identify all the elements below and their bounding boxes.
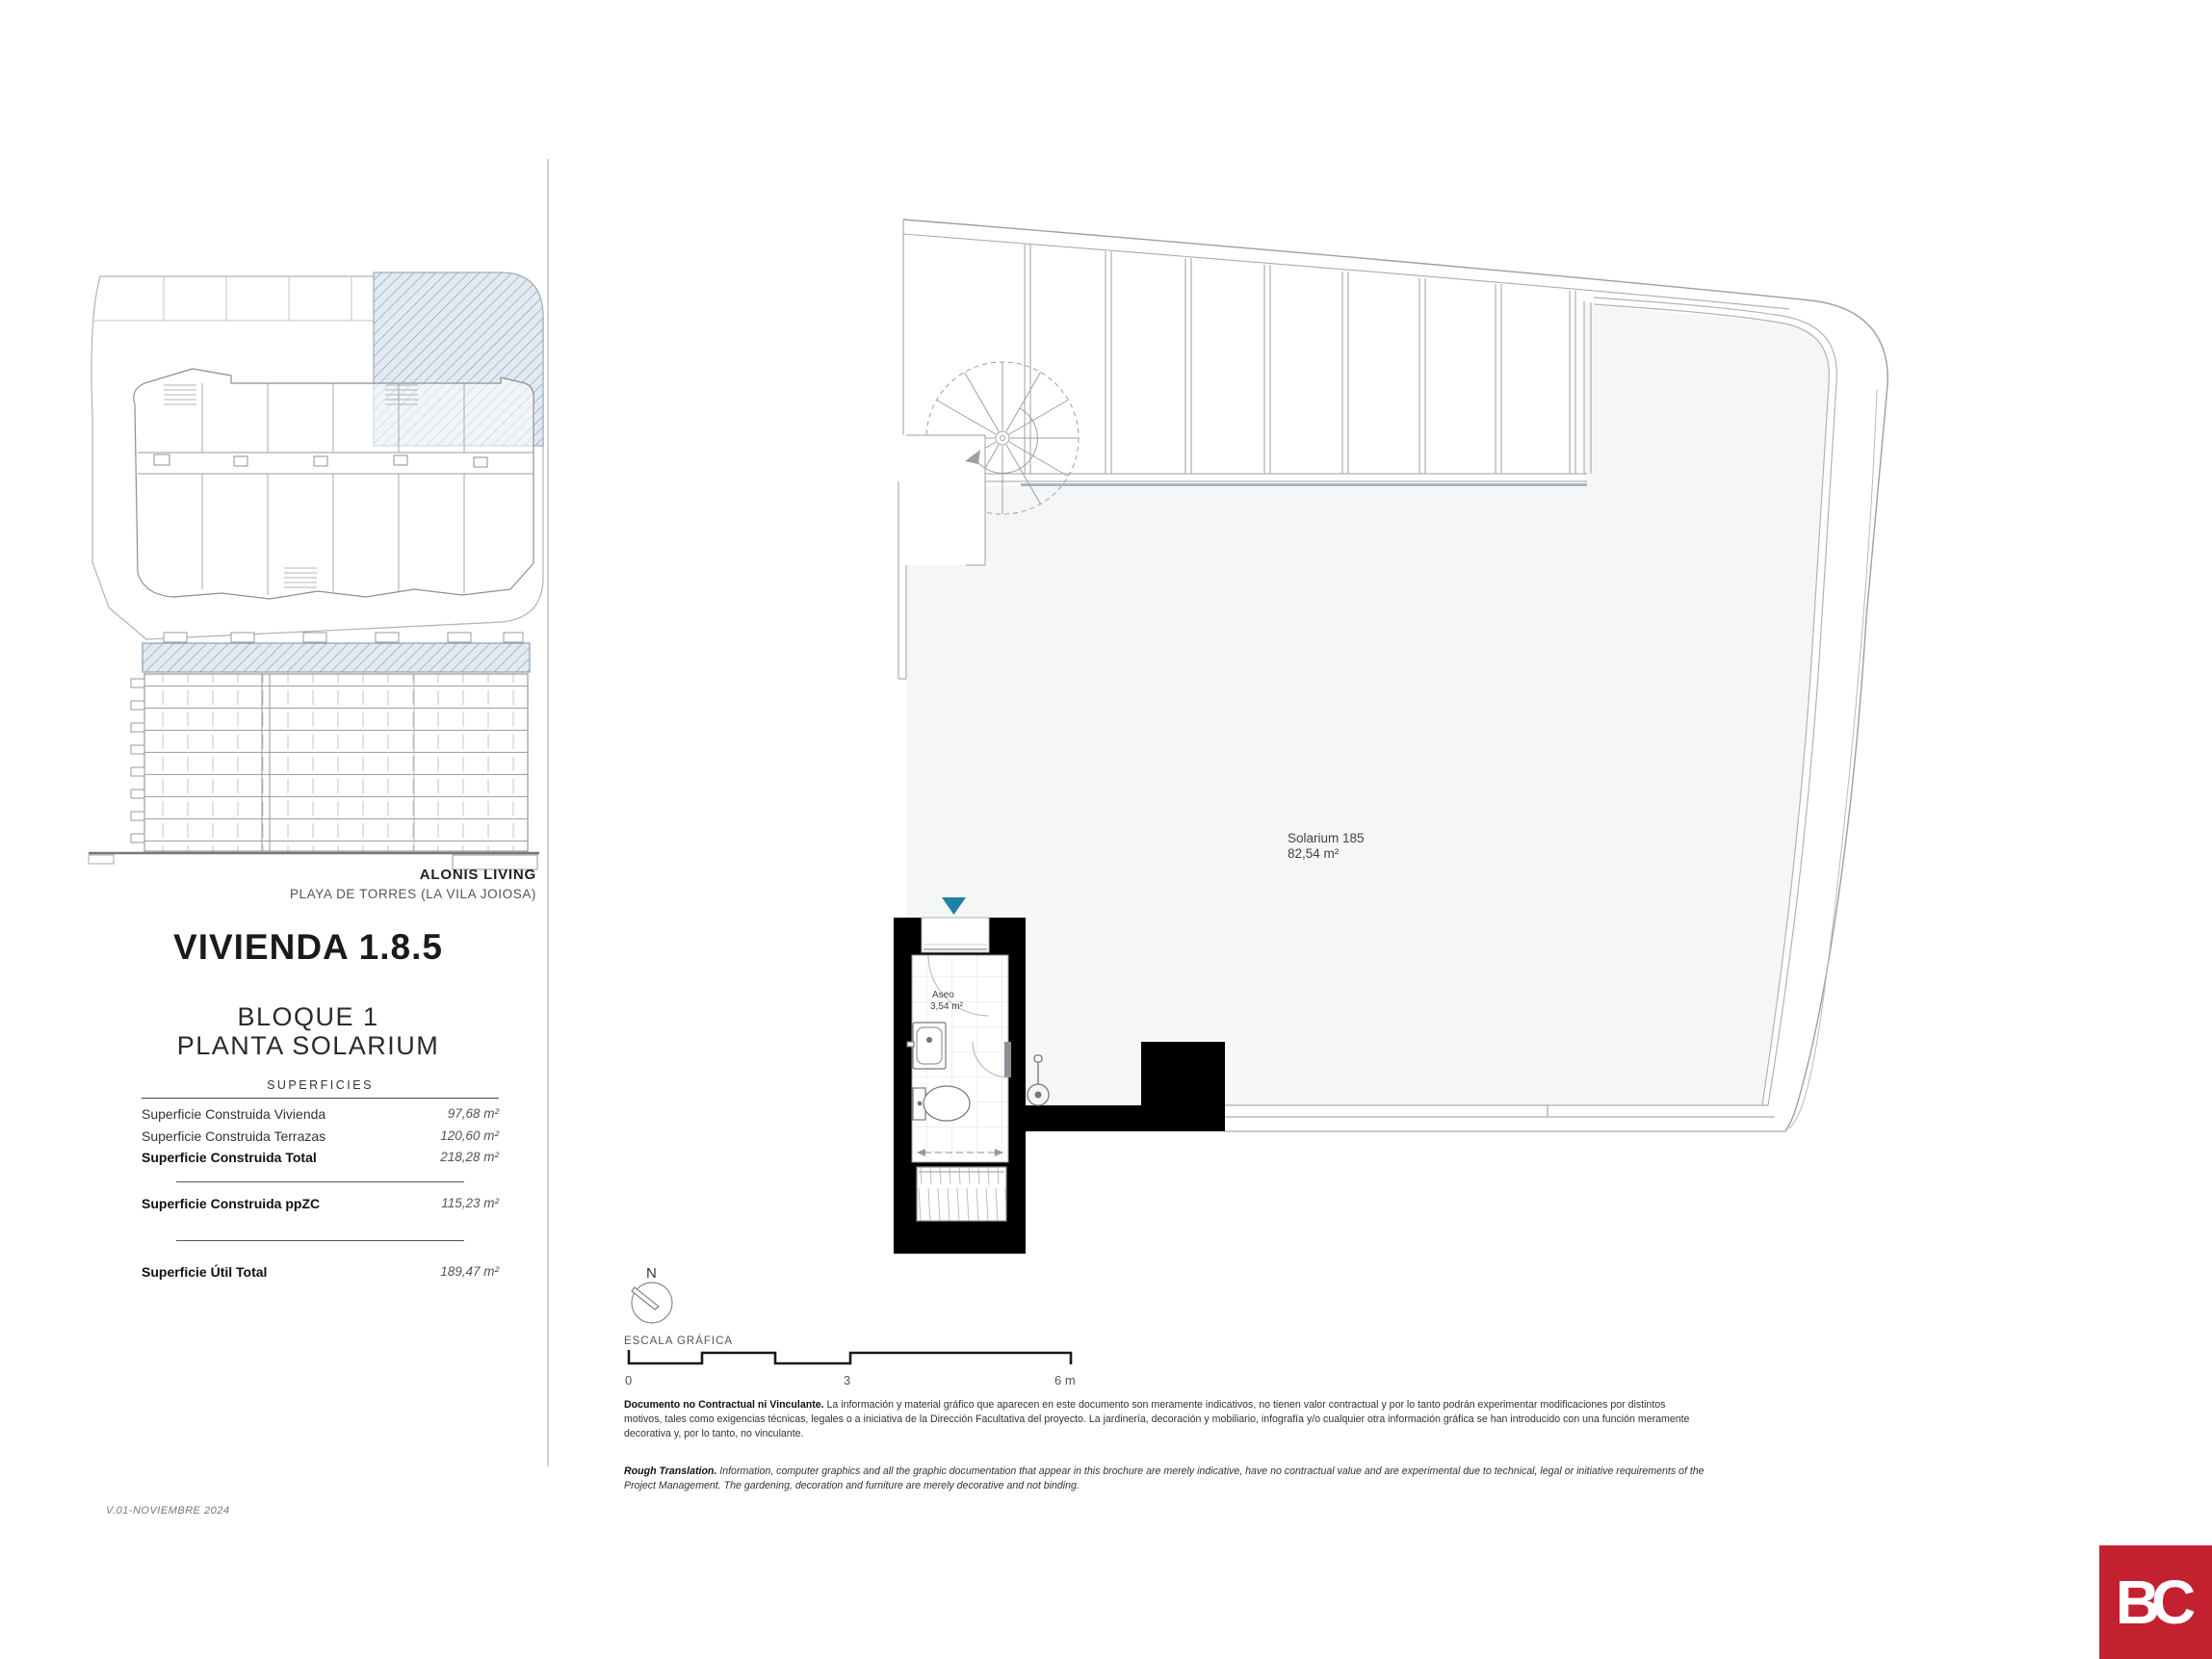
superficies-header: SUPERFICIES [142,1078,499,1099]
scale-tick-6: 6 m [1054,1373,1076,1387]
row-value: 97,68 m² [448,1106,499,1123]
row-value: 218,28 m² [440,1150,499,1166]
row-label: Superficie Útil Total [142,1264,267,1281]
bc-logo: BC [2099,1545,2212,1659]
solarium-label: Solarium 185 [1288,831,1365,845]
scale-tick-0: 0 [625,1373,632,1387]
bathroom-label: Aseo [932,990,954,1000]
row-label: Superficie Construida Terrazas [142,1128,325,1145]
table-row: Superficie Útil Total 189,47 m² [142,1264,499,1281]
project-location: PLAYA DE TORRES (LA VILA JOIOSA) [87,887,536,903]
project-name: ALONIS LIVING [87,867,536,885]
row-label: Superficie Construida ppZC [142,1196,320,1212]
project-header: ALONIS LIVING PLAYA DE TORRES (LA VILA J… [87,867,536,903]
version-note: V.01-NOVIEMBRE 2024 [106,1505,230,1516]
row-value: 120,60 m² [440,1128,499,1145]
disclaimer-es: Documento no Contractual ni Vinculante. … [624,1398,1705,1440]
block-label: BLOQUE 1 [87,1003,530,1032]
unit-title: VIVIENDA 1.8.5 [87,927,530,968]
bathroom: Aseo 3,54 m² [907,918,1011,1221]
graphic-scale: ESCALA GRÁFICA 0 3 6 m [624,1335,1076,1387]
table-divider [176,1181,464,1182]
disclaimer-en: Rough Translation. Information, computer… [624,1465,1705,1493]
floor-plan: Aseo 3,54 m² Solarium 185 82,54 m² [894,220,1887,1254]
table-row: Superficie Construida ppZC 115,23 m² [142,1196,499,1212]
sink [907,1023,946,1069]
table-row: Superficie Construida Total 218,28 m² [142,1150,499,1166]
north-compass-icon: N [632,1265,672,1323]
floor-label: PLANTA SOLARIUM [87,1032,530,1061]
row-label: Superficie Construida Vivienda [142,1106,325,1123]
disclaimer-en-lead: Rough Translation. [624,1465,716,1477]
door-leaf [1004,1042,1011,1077]
bc-logo-text: BC [2116,1571,2196,1633]
row-label: Superficie Construida Total [142,1150,317,1166]
solarium-terrace [906,304,1829,1105]
toilet [913,1086,970,1121]
row-value: 189,47 m² [440,1264,499,1281]
compass-label: N [646,1265,657,1282]
block-floor: BLOQUE 1 PLANTA SOLARIUM [87,1003,530,1060]
key-site-plan [91,272,543,639]
superficies-table: SUPERFICIES Superficie Construida Vivien… [142,1078,499,1281]
row-value: 115,23 m² [441,1196,499,1212]
table-divider [176,1240,464,1241]
pergola-slats [1025,245,1575,474]
table-row: Superficie Construida Terrazas 120,60 m² [142,1128,499,1145]
elevation-solarium-highlight [143,643,530,672]
shower-tray [917,1167,1006,1221]
bathroom-area: 3,54 m² [930,1001,964,1012]
solarium-area: 82,54 m² [1288,846,1340,861]
scale-title: ESCALA GRÁFICA [624,1335,733,1347]
disclaimer-es-lead: Documento no Contractual ni Vinculante. [624,1399,824,1411]
plan-sheet: Aseo 3,54 m² Solarium 185 82,54 m² N ESC… [0,0,2212,1659]
key-elevation [89,633,539,869]
table-row: Superficie Construida Vivienda 97,68 m² [142,1106,499,1123]
scale-tick-3: 3 [844,1373,850,1387]
disclaimer-en-body: Information, computer graphics and all t… [624,1465,1705,1491]
